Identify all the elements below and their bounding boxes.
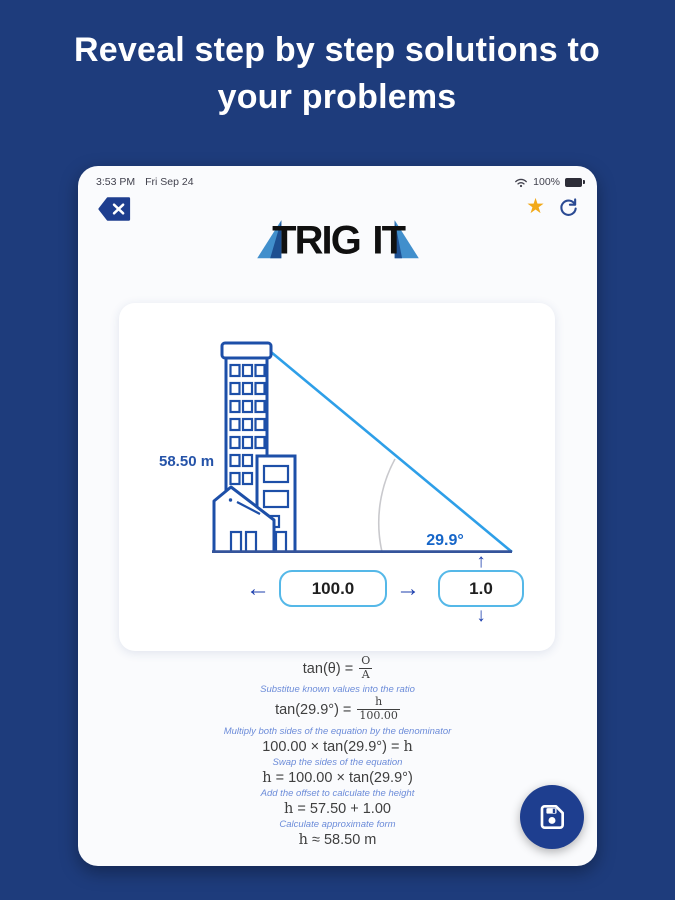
toolbar-actions: ★ (526, 196, 579, 218)
refresh-button[interactable] (558, 197, 579, 218)
angle-arc (379, 459, 395, 552)
status-date: Fri Sep 24 (145, 176, 193, 188)
height-label: 58.50 m (159, 453, 214, 470)
step-equation: tan(θ) = OA (78, 656, 597, 682)
save-floppy-icon (536, 801, 568, 833)
hypotenuse-line (271, 352, 512, 552)
close-icon (98, 197, 131, 221)
step-equation: 100.00 × tan(29.9°) = h (78, 739, 597, 755)
logo-word-1: TRIG (272, 219, 360, 261)
battery-icon (565, 178, 582, 187)
angle-label: 29.9° (426, 532, 464, 549)
offset-value-input[interactable]: 1.0 (438, 570, 524, 607)
app-logo: TRIG IT (253, 209, 423, 266)
offset-stepper: ↑ 1.0 ↓ (438, 553, 524, 624)
step-description: Multiply both sides of the equation by t… (78, 726, 597, 737)
status-time: 3:53 PM (96, 176, 135, 188)
fraction: h100.00 (357, 696, 400, 722)
logo-word-2: IT (372, 219, 405, 261)
status-bar: 3:53 PM Fri Sep 24 100% (96, 176, 582, 188)
solution-steps: tan(θ) = OASubstitue known values into t… (78, 654, 597, 850)
step-description: Substitue known values into the ratio (78, 684, 597, 695)
decrease-adjacent-arrow-icon[interactable]: ← (246, 580, 270, 597)
wifi-icon (514, 177, 528, 188)
save-button[interactable] (520, 785, 584, 849)
page-background: Reveal step by step solutions to your pr… (0, 0, 675, 900)
diagram-card: 58.50 m 29.9° ← 100.0 → ↑ 1.0 ↓ (119, 303, 555, 651)
step-equation: tan(29.9°) = h100.00 (78, 697, 597, 723)
step-description: Calculate approximate form (78, 819, 597, 830)
favorite-star-button[interactable]: ★ (526, 196, 545, 218)
fraction: OA (359, 655, 372, 681)
star-icon: ★ (526, 195, 545, 218)
decrease-offset-arrow-icon[interactable]: ↓ (476, 607, 486, 624)
step-equation: h ≈ 58.50 m (78, 832, 597, 848)
adjacent-value-input[interactable]: 100.0 (279, 570, 387, 607)
increase-adjacent-arrow-icon[interactable]: → (396, 580, 420, 597)
refresh-icon (558, 197, 579, 218)
battery-percent: 100% (533, 176, 560, 188)
step-description: Add the offset to calculate the height (78, 788, 597, 799)
app-screenshot: 3:53 PM Fri Sep 24 100% (78, 166, 597, 866)
step-description: Swap the sides of the equation (78, 757, 597, 768)
inputs-row: ← 100.0 → ↑ 1.0 ↓ (167, 553, 603, 624)
step-equation: h = 100.00 × tan(29.9°) (78, 770, 597, 786)
headline: Reveal step by step solutions to your pr… (37, 27, 637, 121)
increase-offset-arrow-icon[interactable]: ↑ (476, 553, 486, 570)
triangle-diagram: 58.50 m 29.9° (119, 303, 555, 553)
close-button[interactable] (98, 197, 131, 221)
building-illustration (214, 343, 295, 552)
